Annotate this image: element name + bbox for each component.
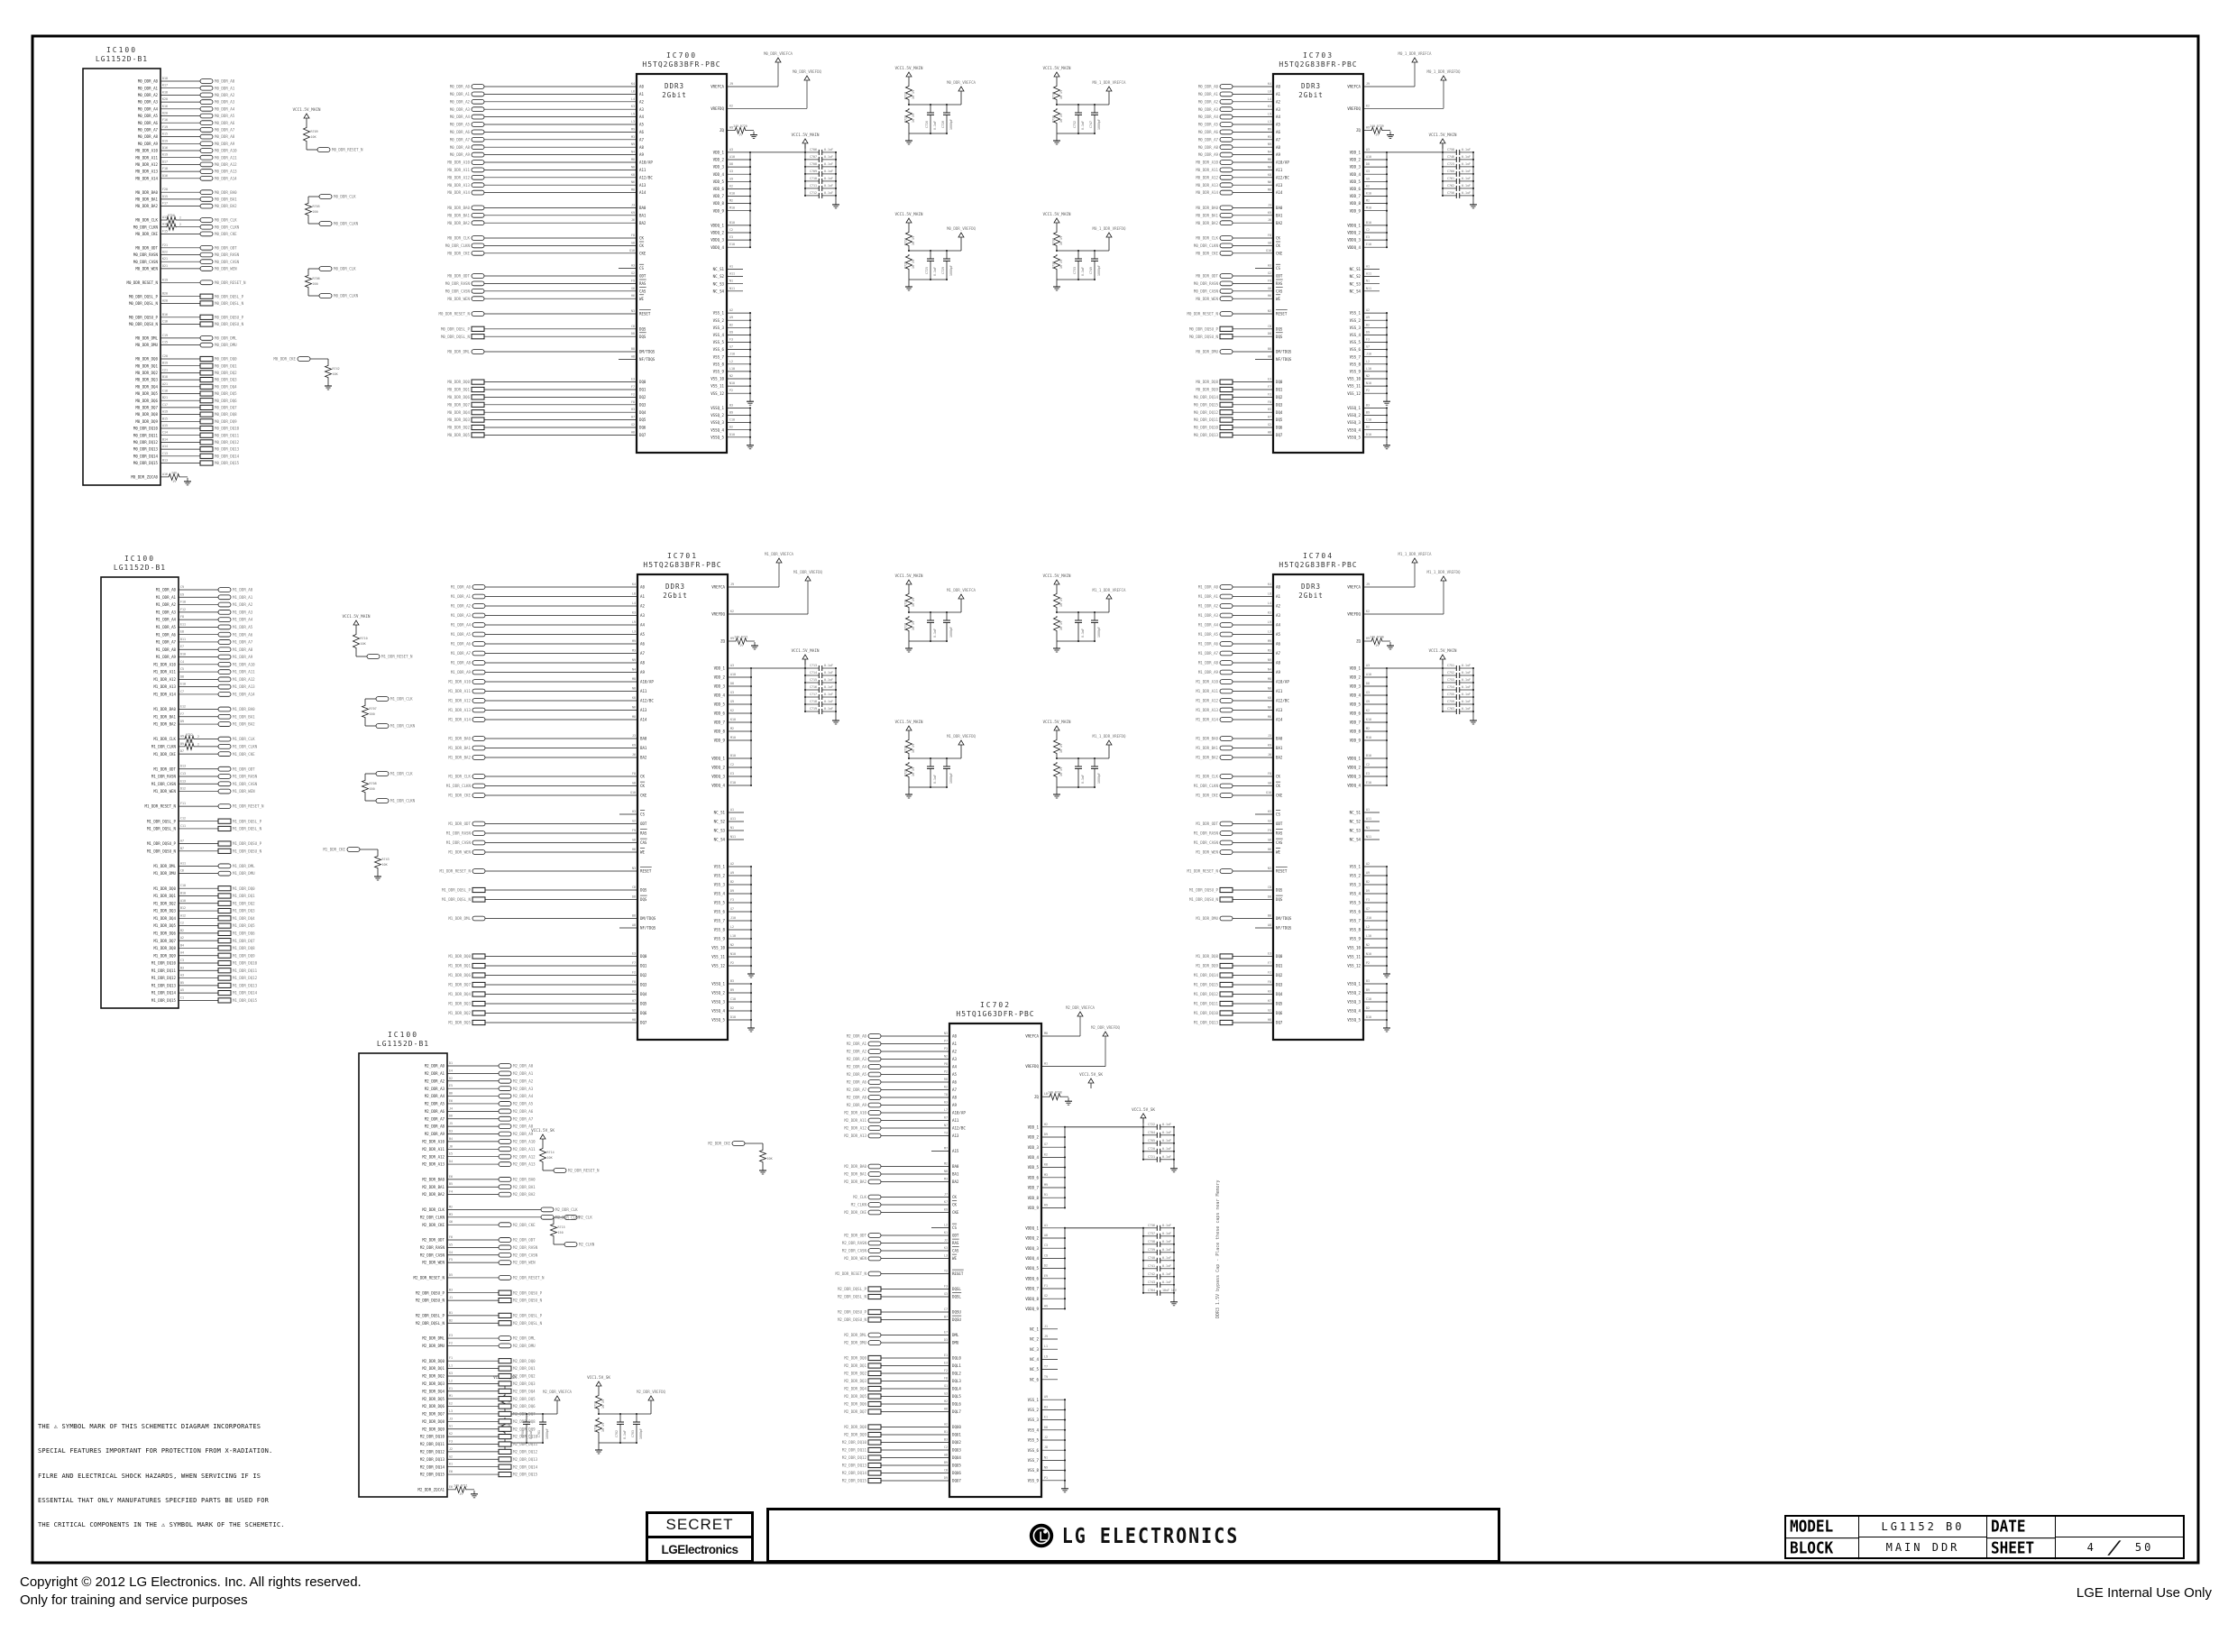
pin-number: B9 xyxy=(180,742,184,746)
pin-name: DQ4 xyxy=(639,410,646,415)
pin-name: VSSQ_2 xyxy=(711,413,724,418)
component-refdes: C713 xyxy=(810,664,817,667)
pin-number: L8 xyxy=(1268,89,1271,93)
pin-number: A2 xyxy=(944,1423,948,1427)
component-refdes: C747 xyxy=(1089,121,1093,128)
net-flag-icon xyxy=(868,1425,881,1429)
net-flag-icon xyxy=(1220,395,1233,399)
net-flag-icon xyxy=(1220,161,1233,165)
net-flag-icon xyxy=(218,916,231,921)
pin-name: M1_DDR_A1 xyxy=(156,595,177,600)
net-label: M2_DDR_A0 xyxy=(847,1034,867,1039)
net-label: M2_DDR_A2 xyxy=(847,1050,867,1054)
pin-number: F8 xyxy=(632,772,636,776)
pin-name: VDDQ_4 xyxy=(1025,1256,1039,1261)
net-flag-icon xyxy=(499,1147,511,1152)
net-flag-icon xyxy=(218,826,231,831)
pin-name: NC_S3 xyxy=(1350,281,1361,286)
pin-name: VSS_1 xyxy=(1028,1398,1040,1402)
net-label: M2_DDR_RESET_N xyxy=(835,1271,866,1276)
pin-number: G2 xyxy=(1268,820,1271,823)
resistor-icon xyxy=(760,1149,766,1163)
pin-name: CKE xyxy=(952,1210,959,1215)
pin-number: C2 xyxy=(180,922,184,925)
pin-number: T3 xyxy=(944,1132,948,1135)
net-flag-icon xyxy=(472,1001,485,1005)
net-flag-icon xyxy=(200,461,213,465)
pin-number: M8 xyxy=(1268,715,1271,719)
pin-name: BA2 xyxy=(952,1179,959,1184)
net-label: M1_DDR_A9 xyxy=(233,655,253,659)
net-flag-icon xyxy=(200,106,213,111)
pin-name: DQL0 xyxy=(952,1356,961,1361)
pin-number: A8 xyxy=(631,354,635,358)
pin-number: D2 xyxy=(1366,426,1370,429)
net-flag-icon xyxy=(472,274,484,279)
pin-name: A12/BC xyxy=(1276,699,1289,703)
pin-number: G2 xyxy=(1268,271,1271,275)
pin-name: VSSQ_5 xyxy=(1347,435,1361,439)
net-label: M0_DDR_RASN xyxy=(445,281,471,286)
net-flag-icon xyxy=(472,107,484,112)
net-flag-icon xyxy=(1220,350,1233,354)
net-label: M2_DDR_DQ15 xyxy=(842,1479,867,1483)
pin-number: K2 xyxy=(729,104,733,107)
pin-name: M0_DDR_DQ15 xyxy=(133,461,159,465)
pin-name: VDD_3 xyxy=(713,165,725,170)
junction-dot xyxy=(930,786,931,788)
pin-number: N11 xyxy=(1366,835,1371,839)
pin-number: D18 xyxy=(162,77,168,80)
junction-dot xyxy=(1386,956,1388,958)
net-label: M1_DDR_BA2 xyxy=(448,756,471,760)
vref-net-label: M0_DDR_VREFDQ xyxy=(947,226,976,231)
pin-number: F8 xyxy=(1268,772,1271,776)
net-flag-icon xyxy=(472,963,485,968)
pin-number: H6 xyxy=(631,294,635,298)
pin-name: CKE xyxy=(639,251,646,255)
ic-inner-label: DDR3 xyxy=(665,82,684,90)
pin-number: K4 xyxy=(632,583,636,586)
net-flag-icon xyxy=(1220,221,1233,225)
junction-dot xyxy=(1386,992,1388,994)
pin-name: VDDQ_3 xyxy=(1347,775,1361,779)
junction-dot xyxy=(1386,312,1388,314)
pin-number: D20 xyxy=(162,112,168,115)
net-flag-icon xyxy=(868,1133,881,1138)
pin-name: VDD_8 xyxy=(713,201,725,206)
power-arrow-icon xyxy=(805,576,811,581)
component-value: 0.1uF xyxy=(824,671,833,675)
net-flag-icon xyxy=(472,236,484,241)
net-flag-icon xyxy=(218,632,231,637)
pin-name: VSS_2 xyxy=(1350,318,1361,323)
component-value: 1K 1% xyxy=(1059,236,1063,245)
pin-name: A2 xyxy=(1276,604,1280,609)
net-flag-icon xyxy=(1220,887,1233,892)
pin-number: C2 xyxy=(1366,228,1370,232)
junction-dot xyxy=(749,312,751,314)
pin-name: DQ3 xyxy=(1276,402,1283,407)
pin-name: A12/BC xyxy=(1276,175,1289,179)
pin-number: G9 xyxy=(1366,700,1370,703)
junction-dot xyxy=(1386,203,1388,205)
net-flag-icon xyxy=(472,604,485,609)
net-flag-icon xyxy=(1220,312,1233,317)
pin-number: C7 xyxy=(944,1308,948,1311)
ic-inner-label: 2Gbit xyxy=(662,91,687,99)
pin-number: C2 xyxy=(1366,763,1370,766)
net-flag-icon xyxy=(218,722,231,727)
component-value: 0.1uF xyxy=(824,177,833,180)
pin-name: RESET xyxy=(640,869,652,874)
net-label: M2_DDR_DQ11 xyxy=(513,1442,538,1446)
pin-number: J6 xyxy=(632,753,636,757)
net-label: M2_DDR_ODT xyxy=(513,1238,536,1243)
junction-dot xyxy=(1386,195,1388,197)
pin-name: CK xyxy=(1276,784,1280,788)
pin-number: M2 xyxy=(729,199,733,203)
pin-number: J3 xyxy=(449,1417,453,1420)
pin-name: VDD_9 xyxy=(713,208,725,213)
pin-number: D2 xyxy=(1044,1264,1048,1268)
junction-dot xyxy=(749,363,751,365)
pin-number: B19 xyxy=(162,362,168,365)
component-refdes: R722 xyxy=(904,92,908,99)
pin-name: A1 xyxy=(1276,594,1280,599)
pin-number: H8 xyxy=(631,430,635,434)
net-flag-icon xyxy=(218,960,231,965)
net-label: M0_DDR_A3 xyxy=(450,107,471,112)
net-label: M0_DDR_ODT xyxy=(1196,274,1218,279)
net-flag-icon xyxy=(499,1140,511,1144)
junction-dot xyxy=(750,866,752,867)
pin-name: VDD_6 xyxy=(1350,711,1361,716)
pin-number: J9 xyxy=(730,583,734,586)
pin-number: F11 xyxy=(180,802,186,805)
component-value: 0.1uF xyxy=(1462,177,1471,180)
junction-dot xyxy=(750,730,752,732)
component-value: 1K 1% xyxy=(912,621,915,630)
junction-dot xyxy=(750,685,752,687)
pin-name: DQS xyxy=(639,326,646,331)
pin-number: N4 xyxy=(632,668,636,672)
power-arrow-icon xyxy=(906,726,912,730)
resistor-icon xyxy=(1049,1094,1061,1100)
pin-name: DQ5 xyxy=(640,1002,647,1006)
pin-number: D10 xyxy=(730,1015,736,1019)
component-value: 1000pF xyxy=(949,119,953,130)
pin-number: P2 xyxy=(729,389,733,392)
net-flag-icon xyxy=(472,243,484,248)
junction-dot xyxy=(749,429,751,431)
net-flag-icon xyxy=(218,782,231,786)
component-value: 1K 1% xyxy=(1059,621,1063,630)
pin-name: BA0 xyxy=(640,737,647,741)
pin-name: A11 xyxy=(952,1118,959,1123)
net-flag-icon xyxy=(218,752,231,757)
component-refdes: R709 xyxy=(311,130,318,133)
net-flag-icon xyxy=(1220,642,1233,647)
pin-name: DQL2 xyxy=(952,1372,961,1376)
pin-name: A8 xyxy=(1276,145,1280,150)
net-flag-icon xyxy=(472,642,485,647)
net-flag-icon xyxy=(868,1394,881,1399)
net-label: M0_DDR_A5 xyxy=(450,123,471,127)
pin-name: A14 xyxy=(1276,718,1283,722)
sheet-label: SHEET xyxy=(1987,1536,2056,1558)
pin-name: NC_S3 xyxy=(714,829,726,833)
net-flag-icon xyxy=(200,142,213,146)
pin-number: B5 xyxy=(180,981,184,985)
pin-number: E7 xyxy=(180,645,184,648)
net-flag-icon xyxy=(1220,784,1233,788)
net-flag-icon xyxy=(1220,99,1233,104)
net-label: M1_DDR_DQ9 xyxy=(1196,964,1218,968)
pin-name: A0 xyxy=(1276,85,1280,89)
warning-line: THE CRITICAL COMPONENTS IN THE ⚠ SYMBOL … xyxy=(38,1521,335,1529)
pin-name: VSSQ_4 xyxy=(1347,1009,1361,1014)
pin-name: A7 xyxy=(639,137,644,142)
pin-name: M2_DDR_DQ3 xyxy=(422,1381,445,1386)
pin-name: A14 xyxy=(639,190,646,195)
pin-number: C7 xyxy=(180,690,184,693)
pin-name: A7 xyxy=(1276,651,1280,656)
pin-number: N7 xyxy=(944,1124,948,1127)
net-label: M1_DDR_DQ0 xyxy=(233,886,255,891)
pin-number: F18 xyxy=(162,167,168,170)
pin-name: VSS_6 xyxy=(1350,910,1361,914)
pin-number: G9 xyxy=(1366,177,1370,180)
pin-name: VSS_12 xyxy=(711,964,725,968)
pin-number: J2 xyxy=(449,1447,453,1451)
pin-number: K8 xyxy=(1268,696,1271,700)
junction-dot xyxy=(1386,712,1388,714)
resistor-icon xyxy=(353,633,360,649)
pin-name: DQS xyxy=(639,335,646,339)
net-flag-icon xyxy=(499,1397,511,1401)
net-label: M1_DDR_A0 xyxy=(451,585,472,590)
junction-dot xyxy=(750,884,752,886)
pin-number: L2 xyxy=(1366,925,1370,929)
pin-number: F7 xyxy=(631,385,635,389)
pin-number: B8 xyxy=(632,914,636,918)
net-label: M0_DDR_BA0 xyxy=(447,206,470,210)
pin-name: A9 xyxy=(1276,670,1280,675)
pin-name: BA2 xyxy=(639,221,646,225)
pin-name: DQ5 xyxy=(1276,418,1283,422)
pin-number: A11 xyxy=(1366,272,1371,276)
net-label: M2_DDR_DQ0 xyxy=(513,1359,536,1363)
net-label: M1_DDR_CLK xyxy=(233,737,255,741)
component-value: 0.1uF xyxy=(1162,1224,1171,1227)
sheet-separator: / xyxy=(2105,1537,2126,1558)
pin-name: M1_DDR_DQ9 xyxy=(153,953,176,958)
net-flag-icon xyxy=(200,197,213,202)
pin-name: M1_DDR_A8 xyxy=(156,647,177,652)
net-flag-icon xyxy=(200,405,213,409)
net-label: M1_DDR_A11 xyxy=(1196,689,1218,693)
vref-net-label: M2_DDR_VREFCA xyxy=(1066,1005,1096,1010)
pin-number: F8 xyxy=(631,400,635,404)
pin-number: M2 xyxy=(944,1162,948,1166)
pin-name: M0_DDR_CLKN xyxy=(133,225,159,229)
net-flag-icon xyxy=(1220,661,1233,665)
power-arrow-icon xyxy=(1440,139,1445,143)
power-arrow-icon xyxy=(1440,655,1445,659)
pin-number: A10 xyxy=(1366,155,1371,159)
pin-number: J6 xyxy=(631,218,635,222)
net-flag-icon xyxy=(200,356,213,361)
ic-refdes: IC701 xyxy=(667,552,698,560)
net-label: M2_DDR_CKE xyxy=(708,1142,730,1146)
net-flag-icon xyxy=(472,145,484,150)
pin-number: F17 xyxy=(162,202,168,206)
net-label: M2_DDR_DQ13 xyxy=(842,1464,867,1468)
junction-dot xyxy=(1094,279,1096,280)
pin-number: B3 xyxy=(730,979,734,983)
component-refdes: C725 xyxy=(925,267,929,274)
net-flag-icon xyxy=(499,1313,511,1317)
junction-dot xyxy=(1386,785,1388,786)
component-refdes: C741 xyxy=(1148,1264,1155,1268)
pin-number: N10 xyxy=(1366,381,1371,385)
net-label: M1_DDR_A7 xyxy=(233,640,253,645)
company-logo-text: LG ELECTRONICS xyxy=(1062,1523,1240,1548)
net-flag-icon xyxy=(1220,585,1233,590)
net-flag-icon xyxy=(499,1427,511,1431)
pin-number: B9 xyxy=(944,1461,948,1464)
pin-name: WE xyxy=(639,297,644,301)
pin-name: BA0 xyxy=(952,1164,959,1169)
junction-dot xyxy=(1386,349,1388,351)
net-flag-icon xyxy=(1220,869,1233,874)
pin-name: M0_DDR_CASN xyxy=(133,260,159,264)
ic-refdes: IC100 xyxy=(106,46,137,54)
pin-number: K2 xyxy=(449,1432,453,1436)
net-label: M0_DDR_ODT xyxy=(215,245,237,250)
pin-name: A5 xyxy=(639,123,644,127)
power-net-label: VCC1.5V_MAIN xyxy=(1042,574,1070,579)
pin-number: L2 xyxy=(729,360,733,363)
pin-name: VDDQ_7 xyxy=(1025,1287,1039,1291)
pin-name: DQL7 xyxy=(952,1409,961,1414)
ic-body xyxy=(637,574,728,1040)
pin-name: VDD_4 xyxy=(1350,693,1361,698)
pin-name: DQ0 xyxy=(639,380,646,384)
net-flag-icon xyxy=(564,1243,577,1247)
net-flag-icon xyxy=(868,1341,881,1345)
pin-number: G6 xyxy=(1268,839,1271,842)
net-label: M2_DDR_DQSL_P xyxy=(513,1313,543,1317)
component-value: 240 R740 xyxy=(1370,636,1383,639)
net-label: M0_DDR_CLK xyxy=(334,195,356,199)
net-flag-icon xyxy=(472,289,484,293)
net-flag-icon xyxy=(472,850,485,855)
power-arrow-icon xyxy=(1412,58,1417,62)
net-flag-icon xyxy=(200,363,213,368)
junction-dot xyxy=(1386,766,1388,768)
net-label: M0_DDR_A9 xyxy=(1198,152,1219,157)
net-label: M2_DDR_DQ6 xyxy=(844,1402,866,1407)
junction-dot xyxy=(946,640,948,642)
component-refdes: R730 xyxy=(1052,92,1056,99)
pin-number: C9 xyxy=(180,585,184,589)
net-label: M0_DDR_DQ3 xyxy=(447,418,470,422)
component-value: 0.1uF xyxy=(824,700,833,703)
net-flag-icon xyxy=(499,1298,511,1302)
pin-number: J3 xyxy=(631,203,635,206)
pin-name: M0_DDR_DQSU_P xyxy=(129,315,159,319)
pin-name: DQ6 xyxy=(1276,426,1283,430)
junction-dot xyxy=(750,956,752,958)
net-flag-icon xyxy=(200,294,213,298)
net-flag-icon xyxy=(1220,613,1233,618)
junction-dot xyxy=(1386,188,1388,189)
net-label: M2_DDR_CLK xyxy=(555,1207,578,1212)
pin-number: N10 xyxy=(1366,952,1371,956)
net-flag-icon xyxy=(200,412,213,417)
pin-name: RESET xyxy=(1276,869,1288,874)
pin-number: E3 xyxy=(631,378,635,381)
component-value: 1K 1% xyxy=(1059,744,1063,753)
net-label: M2_DDR_A9 xyxy=(513,1132,534,1136)
net-label: M0_DDR_DQ9 xyxy=(215,419,237,424)
pin-number: G7 xyxy=(729,345,733,349)
net-label: M0_DDR_A9 xyxy=(215,142,235,146)
net-label: M2_DDR_DQ11 xyxy=(842,1448,867,1453)
pin-number: A2 xyxy=(180,936,184,940)
net-label: M2_DDR_DQSU_P xyxy=(513,1290,543,1295)
net-label: M0_DDR_BA0 xyxy=(1196,206,1218,210)
net-flag-icon xyxy=(868,1386,881,1390)
net-label: M1_DDR_A6 xyxy=(1198,642,1219,647)
pin-name: DQ0 xyxy=(640,954,647,959)
pin-number: G2 xyxy=(1044,1294,1048,1298)
pin-name: VSS_12 xyxy=(1347,964,1361,968)
pin-number: N2 xyxy=(1366,374,1370,378)
net-label: M1_DDR_A0 xyxy=(1198,585,1219,590)
net-flag-icon xyxy=(472,418,484,422)
net-label: M0_DDR_CLK xyxy=(1196,236,1218,241)
pin-number: F7 xyxy=(632,961,636,965)
power-arrow-icon xyxy=(555,1396,560,1400)
junction-dot xyxy=(750,929,752,931)
pin-name: M0_DDR_CKE xyxy=(135,232,158,236)
net-label: M0_DDR_A12 xyxy=(1196,175,1218,179)
pin-number: F15 xyxy=(162,229,168,233)
pin-name: DQU7 xyxy=(952,1479,961,1483)
net-label: M0_DDR_CASN xyxy=(445,289,471,293)
pin-number: F3 xyxy=(449,1440,453,1444)
net-label: M1_DDR_DQ1 xyxy=(233,894,255,898)
pin-number: D9 xyxy=(1366,330,1370,334)
net-label: M0_DDR_A0 xyxy=(450,85,471,89)
net-label: M1_DDR_ODT xyxy=(1196,821,1218,826)
net-flag-icon xyxy=(218,625,231,629)
pin-number: N6 xyxy=(632,706,636,710)
pin-name: VSS_11 xyxy=(1347,384,1361,389)
pin-number: A19 xyxy=(162,410,168,414)
junction-dot xyxy=(1064,1298,1066,1299)
pin-number: L8 xyxy=(631,89,635,93)
pin-name: M1_DDR_DQ2 xyxy=(153,901,176,905)
net-label: M2_DDR_A6 xyxy=(847,1080,867,1085)
pin-number: E10 xyxy=(1366,243,1371,246)
pin-number: N4 xyxy=(631,151,635,154)
pin-name: VSS_6 xyxy=(1028,1448,1040,1453)
net-label: M1_DDR_A1 xyxy=(451,594,472,599)
